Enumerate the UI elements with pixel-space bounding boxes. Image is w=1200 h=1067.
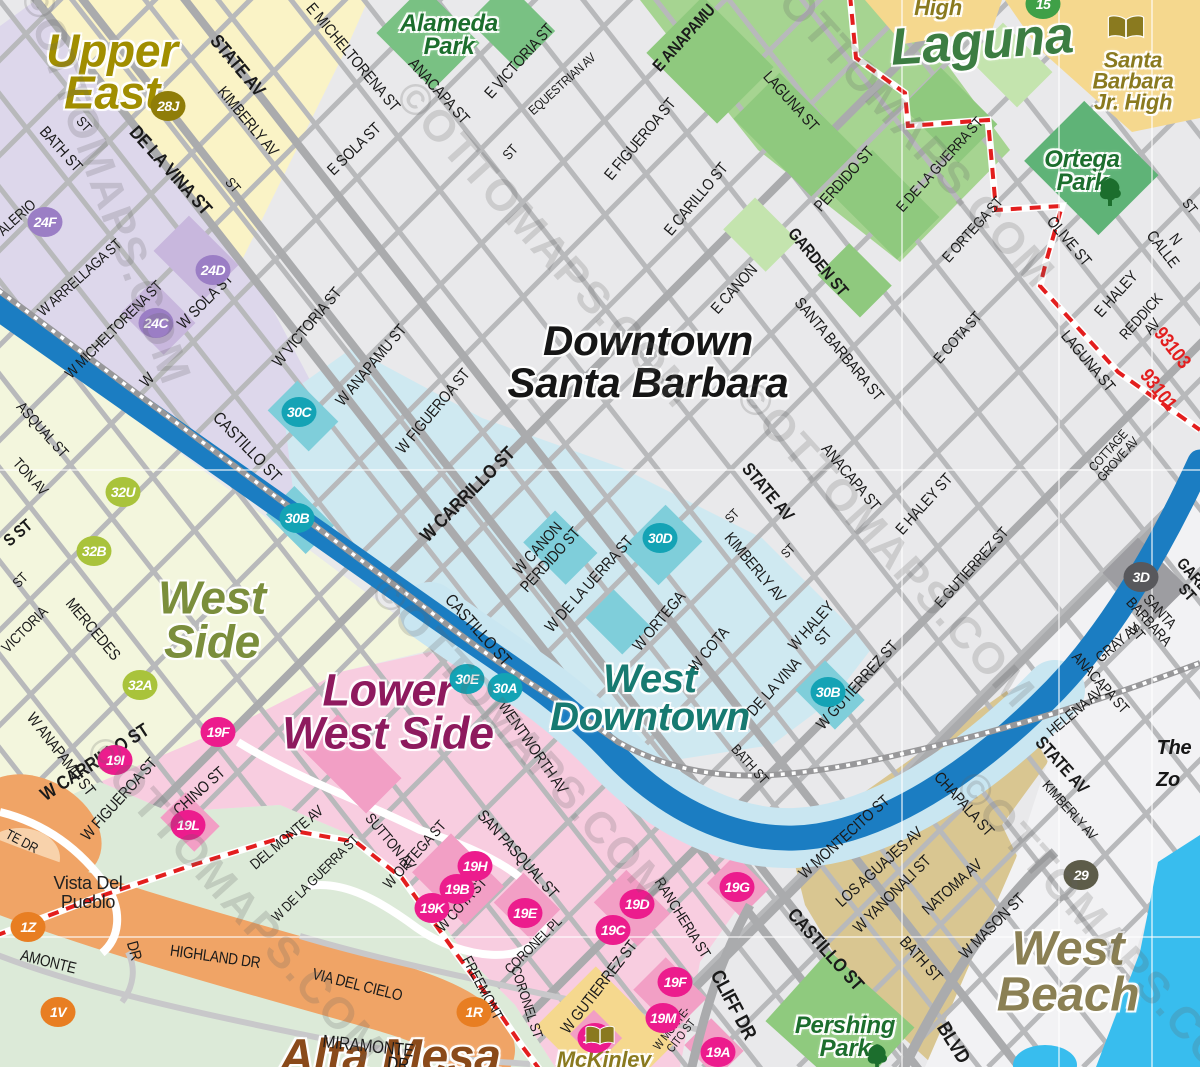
map-canvas: Upper EastLagunaDowntown Santa BarbaraWe…: [0, 0, 1200, 1067]
map-background: [0, 0, 1200, 1067]
